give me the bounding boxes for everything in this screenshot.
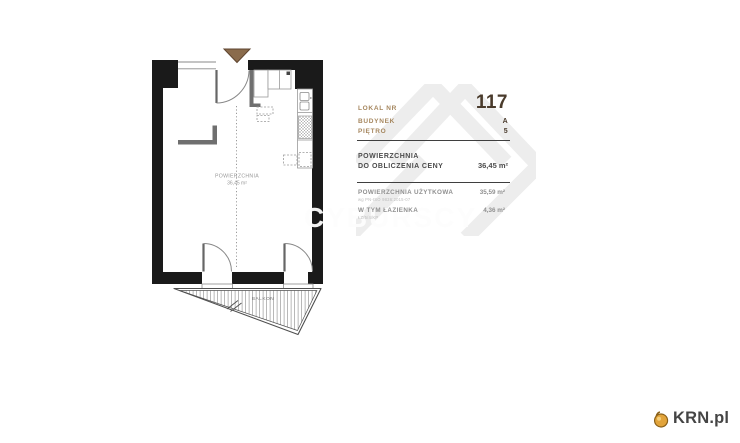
balcony-label: BALKON — [252, 296, 274, 302]
dashed-cabinets — [257, 107, 273, 122]
bathroom-label: W TYM ŁAZIENKA — [358, 208, 418, 214]
building-value: A — [503, 118, 508, 125]
room-area-label: POWIERZCHNIA — [215, 174, 259, 180]
entrance-arrow-icon — [224, 49, 250, 63]
top-wall-window — [178, 61, 216, 70]
floor-value: 5 — [504, 128, 508, 135]
room-area-value: 36,45 m² — [227, 181, 247, 187]
closet-units — [254, 70, 291, 97]
building-label: BUDYNEK — [358, 119, 395, 126]
hob-icon — [299, 116, 313, 139]
bathroom-value: 4,36 m² — [483, 208, 505, 214]
divider-top — [357, 140, 510, 142]
balcony-door-right — [285, 244, 313, 272]
floor-label: PIĘTRO — [358, 129, 386, 136]
unit-number-label: LOKAL NR — [358, 106, 397, 113]
balcony: BALKON — [174, 289, 321, 335]
price-area-label-line2: DO OBLICZENIA CENY — [358, 163, 443, 170]
krn-logo-icon — [652, 407, 670, 429]
balcony-door-left — [204, 244, 232, 272]
interior-l-wall — [178, 126, 217, 145]
divider-bottom — [357, 182, 510, 184]
door-thresholds — [202, 284, 313, 289]
price-area-value: 36,45 m² — [478, 162, 508, 170]
usable-area-label: POWIERZCHNIA UŻYTKOWA — [358, 190, 453, 196]
unit-number-value: 117 — [476, 93, 508, 112]
bathroom-footnote: ŁZ/5/4/KP — [358, 216, 378, 220]
krn-logo: KRN.pl — [652, 407, 729, 429]
kitchen-counter — [284, 89, 313, 168]
price-area-label-line1: POWIERZCHNIA — [358, 153, 419, 160]
floor-plan-card: POWIERZCHNIA 36,45 m² BALKON CYBURSCY LO… — [0, 0, 740, 443]
krn-logo-text: KRN.pl — [673, 409, 729, 428]
usable-area-value: 35,59 m² — [480, 190, 505, 196]
usable-area-footnote: wg PN-ISO 9836:2015-07 — [358, 198, 410, 202]
entrance-door — [217, 70, 250, 103]
